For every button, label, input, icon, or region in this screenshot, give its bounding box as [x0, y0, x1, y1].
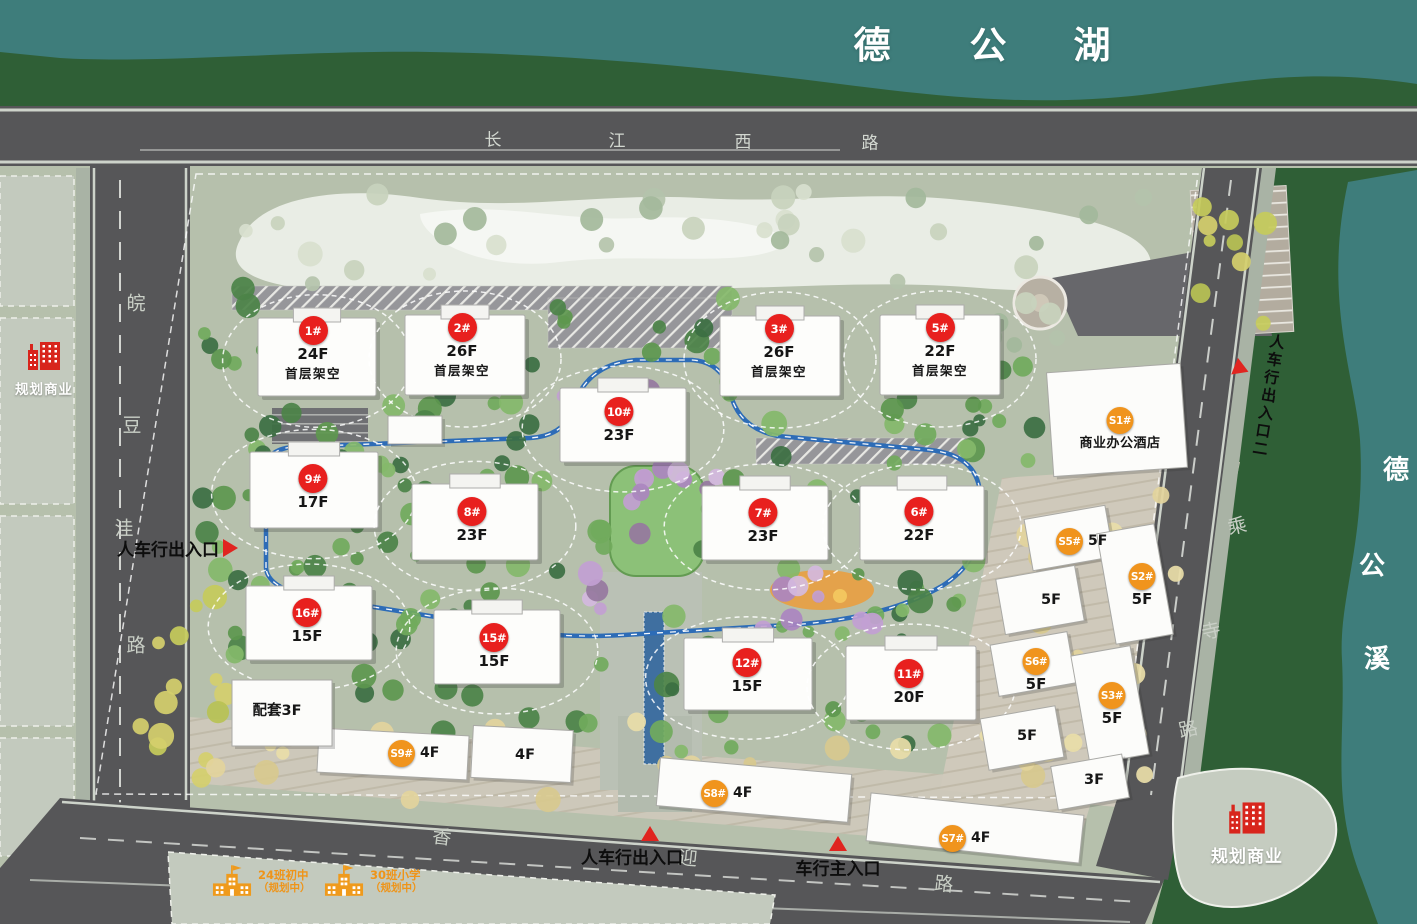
floors-label: 17F [297, 493, 328, 512]
building-badge: S3# [1099, 682, 1126, 709]
floors-label: 4F [971, 829, 990, 848]
entrance-text: 人车行出入口二 [1249, 333, 1286, 460]
floors-label: 15F [291, 627, 322, 646]
building-label-9: 9#17F [297, 464, 328, 512]
entrance-text: 人车行出入口 [117, 541, 219, 561]
creek-name-char: 溪 [1364, 639, 1390, 676]
school-icon [324, 865, 364, 898]
building-badge: S8# [701, 780, 728, 807]
building-badge: 5# [925, 313, 954, 342]
building-badge: 6# [905, 497, 934, 526]
building-label-S7: S7#4F [939, 825, 990, 852]
building-badge: 9# [299, 464, 328, 493]
commercial-building-icon [26, 340, 62, 372]
road-name-east: 寺 [1199, 615, 1223, 645]
school-status: （规划中） [370, 882, 423, 895]
floors-label: 23F [603, 426, 634, 445]
building-label-S3: S3#5F [1099, 682, 1126, 728]
floors-label: 5F [1099, 709, 1126, 728]
entrance-arrow-northeast-icon [1231, 358, 1252, 380]
entrance-arrow-south-icon [641, 826, 659, 841]
building-use-note: 商业办公酒店 [1079, 434, 1160, 453]
road-name-north: 江 [609, 127, 626, 152]
poi-primary-school: 30班小学 （规划中） [324, 865, 423, 898]
school-label: 30班小学 （规划中） [370, 869, 423, 895]
road-name-west: 路 [126, 631, 145, 658]
floor-label: 5F [1041, 592, 1061, 608]
floors-label: 26F [751, 343, 807, 362]
building-label-15: 15#15F [478, 623, 509, 671]
floor-label: 5F [1017, 728, 1037, 744]
school-label: 24班初中 （规划中） [258, 869, 311, 895]
building-label-8: 8#23F [456, 497, 487, 545]
building-label-7: 7#23F [747, 498, 778, 546]
school-name: 24班初中 [258, 869, 311, 882]
entrance-arrow-west-icon [223, 539, 238, 557]
road-name-north: 西 [735, 128, 752, 153]
road-name-west: 豆 [122, 411, 141, 438]
entrance-text: 车行主入口 [796, 860, 881, 880]
poi-label: 规划商业 [15, 378, 73, 398]
floors-text: 3F [1084, 772, 1104, 788]
road-name-east: 乘 [1225, 510, 1249, 540]
building-label-11: 11#20F [893, 659, 924, 707]
building-badge: 12# [733, 648, 762, 677]
building-label-1: 1#24F首层架空 [285, 316, 341, 383]
residential-master-plan: 德 公 湖 德 公 溪 长 江 西 路 皖 豆 洼 路 乘 寺 路 香 迎 路 … [0, 0, 1417, 924]
entrance-text: 人车行出入口 [581, 849, 683, 869]
stilt-floor-note: 首层架空 [751, 362, 807, 381]
building-badge: 3# [764, 314, 793, 343]
floors-label: 22F [912, 342, 968, 361]
building-badge: 7# [749, 498, 778, 527]
floors-label: 4F [733, 784, 752, 803]
building-badge: S2# [1129, 563, 1156, 590]
building-badge: 1# [298, 316, 327, 345]
building-label-12: 12#15F [731, 648, 762, 696]
floors-label: 5F [1023, 675, 1050, 694]
road-name-north: 路 [862, 129, 879, 154]
building-label-S8: S8#4F [701, 780, 752, 807]
building-label-S1: S1#商业办公酒店 [1079, 407, 1160, 453]
floors-label: 15F [731, 677, 762, 696]
lake-name-char: 公 [970, 15, 1007, 69]
floor-label: 4F [515, 747, 535, 763]
stilt-floor-note: 首层架空 [434, 361, 490, 380]
floor-label: 配套3F [253, 699, 302, 720]
entrance-label-south-pedestrian: 人车行出入口 [581, 844, 683, 869]
labels-layer: 德 公 湖 德 公 溪 长 江 西 路 皖 豆 洼 路 乘 寺 路 香 迎 路 … [0, 0, 1417, 924]
poi-label: 规划商业 [1211, 842, 1283, 867]
floors-text: 配套3F [253, 699, 302, 720]
building-label-S5: S5#5F [1056, 528, 1107, 555]
building-badge: 11# [895, 659, 924, 688]
building-badge: 16# [293, 598, 322, 627]
poi-planned-commercial-southeast: 规划商业 [1211, 800, 1283, 867]
floors-label: 5F [1129, 590, 1156, 609]
floors-label: 5F [1088, 532, 1107, 551]
entrance-label-south-main: 车行主入口 [796, 855, 881, 880]
road-name-west: 皖 [126, 289, 145, 316]
building-badge: 8# [458, 497, 487, 526]
creek-name-char: 德 [1383, 450, 1409, 487]
floors-text: 5F [1017, 728, 1037, 744]
stilt-floor-note: 首层架空 [912, 361, 968, 380]
poi-middle-school: 24班初中 （规划中） [212, 865, 311, 898]
building-label-S6: S6#5F [1023, 648, 1050, 694]
building-badge: 10# [605, 397, 634, 426]
building-badge: S1# [1106, 407, 1133, 434]
building-badge: S9# [388, 740, 415, 767]
school-name: 30班小学 [370, 869, 423, 882]
floors-label: 24F [285, 345, 341, 364]
poi-planned-commercial-west: 规划商业 [15, 340, 73, 398]
road-name-south: 香 [431, 821, 453, 850]
floors-label: 23F [456, 526, 487, 545]
floors-label: 26F [434, 342, 490, 361]
building-label-10: 10#23F [603, 397, 634, 445]
building-label-6: 6#22F [903, 497, 934, 545]
building-badge: 15# [480, 623, 509, 652]
building-badge: 2# [447, 313, 476, 342]
road-name-east: 路 [1176, 713, 1200, 743]
floors-label: 4F [420, 744, 439, 763]
floors-label: 23F [747, 527, 778, 546]
lake-name-char: 湖 [1074, 15, 1111, 69]
school-status: （规划中） [258, 882, 311, 895]
road-name-south: 路 [933, 869, 955, 898]
building-label-S2: S2#5F [1129, 563, 1156, 609]
entrance-arrow-main-icon [829, 836, 847, 851]
building-badge: S6# [1023, 648, 1050, 675]
school-icon [212, 865, 252, 898]
building-badge: S5# [1056, 528, 1083, 555]
entrance-label-northeast: 人车行出入口二 [1248, 332, 1288, 460]
lake-name-char: 德 [854, 15, 891, 69]
floors-text: 5F [1041, 592, 1061, 608]
building-label-5: 5#22F首层架空 [912, 313, 968, 380]
stilt-floor-note: 首层架空 [285, 364, 341, 383]
creek-name-char: 公 [1359, 546, 1385, 583]
building-label-S9: S9#4F [388, 740, 439, 767]
floors-label: 22F [903, 526, 934, 545]
entrance-label-west: 人车行出入口 [117, 536, 219, 561]
floor-label: 3F [1084, 772, 1104, 788]
building-badge: S7# [939, 825, 966, 852]
building-label-2: 2#26F首层架空 [434, 313, 490, 380]
floors-label: 20F [893, 688, 924, 707]
building-label-3: 3#26F首层架空 [751, 314, 807, 381]
building-label-16: 16#15F [291, 598, 322, 646]
road-name-north: 长 [485, 126, 502, 151]
commercial-building-icon [1227, 800, 1267, 836]
floors-label: 15F [478, 652, 509, 671]
floors-text: 4F [515, 747, 535, 763]
